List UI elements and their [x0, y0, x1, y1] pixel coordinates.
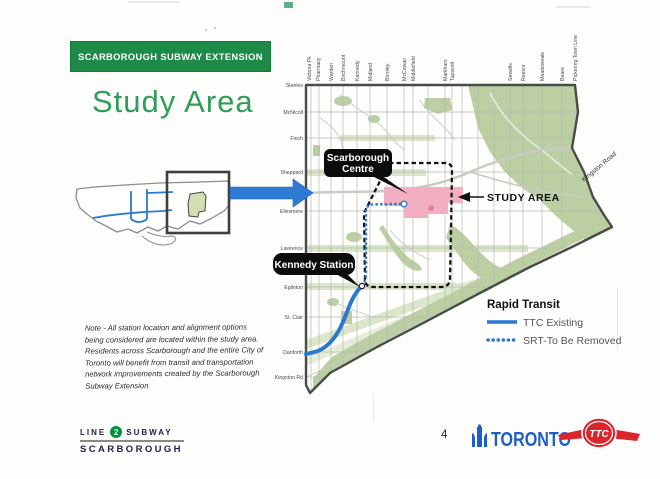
- street-label: Midland: [368, 63, 374, 81]
- kingston-road-label: Kingston Road: [581, 151, 618, 184]
- street-label: Tapscott: [450, 61, 456, 81]
- street-label: Finch: [290, 136, 303, 142]
- page-title: Study Area: [92, 84, 254, 120]
- scan-smudge: [556, 6, 590, 8]
- street-labels-top: Victoria Pk Pharmacy Warden Birchmount K…: [307, 35, 579, 81]
- ttc-monogram: TTC: [589, 429, 609, 440]
- street-label: Brimley: [385, 63, 391, 81]
- callout-label-line2: Centre: [342, 164, 374, 175]
- street-label: Meadowvale: [540, 52, 546, 81]
- street-label: Danforth: [283, 350, 303, 356]
- street-label: Birchmount: [341, 54, 347, 81]
- scan-dot: [205, 29, 207, 31]
- street-label: Sewells: [508, 63, 514, 81]
- scan-dot: [214, 27, 216, 29]
- banner-text: SCARBOROUGH SUBWAY EXTENSION: [78, 52, 263, 62]
- scan-mark: [284, 2, 293, 8]
- street-label: Middlefield: [411, 56, 417, 81]
- street-label: Pickering Town Line: [573, 35, 579, 81]
- scan-smudge: [128, 1, 180, 3]
- badge-name: SCARBOROUGH: [80, 444, 184, 455]
- street-label: Warden: [329, 63, 335, 81]
- legend-item-label: TTC Existing: [523, 317, 583, 329]
- street-label: Victoria Pk: [307, 56, 313, 81]
- slide-banner: SCARBOROUGH SUBWAY EXTENSION: [70, 41, 271, 72]
- legend: Rapid Transit TTC Existing SRT-To Be Rem…: [487, 299, 622, 347]
- line-word: LINE: [80, 428, 106, 437]
- street-label: Kingston Rd: [275, 375, 303, 381]
- slide-page: SCARBOROUGH SUBWAY EXTENSION Study Area: [0, 0, 660, 479]
- city-centre-core: [428, 205, 434, 211]
- legend-title: Rapid Transit: [487, 299, 560, 311]
- street-label: Reesor: [521, 64, 527, 81]
- line2-circle-icon: 2: [110, 426, 122, 438]
- street-label: Steeles: [286, 83, 304, 89]
- page-number: 4: [441, 429, 447, 441]
- toronto-key-map: [60, 160, 320, 275]
- line2-subway-badge: LINE 2 SUBWAY SCARBOROUGH: [80, 426, 184, 455]
- scarborough-centre-station-marker: [401, 201, 407, 207]
- toronto-outline: [76, 181, 231, 233]
- street-label: Beare: [560, 67, 566, 81]
- study-area-label: STUDY AREA: [487, 192, 560, 204]
- street-label: St. Clair: [285, 315, 304, 321]
- street-label: Pharmacy: [316, 57, 322, 81]
- subway-word: SUBWAY: [126, 428, 172, 437]
- street-label: McNicoll: [283, 110, 303, 116]
- badge-divider: [80, 440, 184, 442]
- note-text: Note - All station location and alignmen…: [85, 321, 267, 392]
- street-label: Eglinton: [284, 285, 303, 291]
- street-label: Markham: [443, 59, 449, 81]
- street-label: Kennedy: [355, 60, 361, 81]
- kennedy-station-marker: [359, 283, 364, 288]
- bluffers-park: [388, 340, 407, 355]
- callout-label-line1: Scarborough: [327, 153, 389, 164]
- street-label: McCowan: [402, 58, 408, 81]
- legend-item-label: SRT-To Be Removed: [523, 335, 622, 347]
- study-area-map: Scarborough Centre Kennedy Station STUDY…: [265, 30, 660, 425]
- zoom-arrow: [230, 179, 313, 207]
- toronto-skyline-icon: [472, 424, 487, 447]
- line2-badge-row: LINE 2 SUBWAY: [80, 426, 184, 438]
- ttc-logo: TTC: [556, 413, 642, 453]
